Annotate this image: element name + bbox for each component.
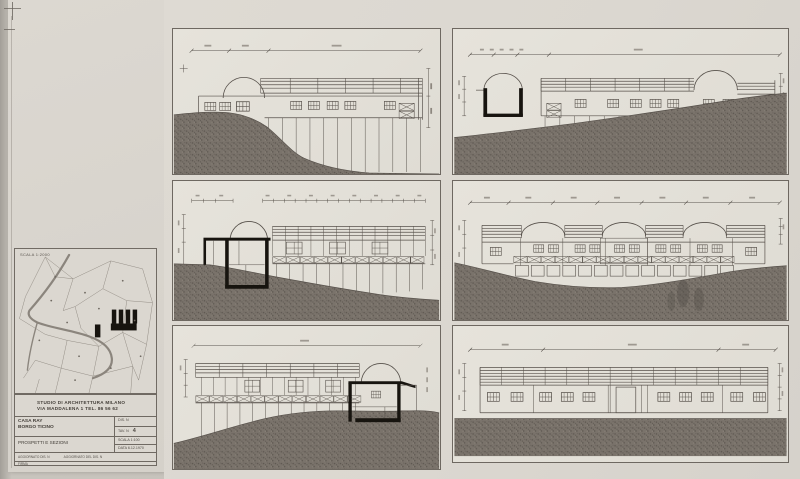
elevation-drawing-f [453,326,788,462]
panel-elevation-a [172,28,441,175]
panel-elevation-d [452,180,789,321]
tav-number: 4 [133,428,136,434]
aggiornato-right: AGGIORNATO DEL DIS. N [64,455,103,462]
section-drawing-e [173,326,440,469]
lower-level-panels [516,265,734,276]
section-elevation-drawing-b [453,29,788,174]
studio-address: VIA MADDALENA 1 TEL. 86 56 62 [37,406,156,412]
sheet-number-cells: DIS. N TAV. N4 [114,417,156,436]
elevation-drawing-a [173,29,440,174]
ground-mass [454,419,786,456]
aggiornato-left: AGGIORNATO DIS. N [18,455,50,462]
dimension-label-marks [178,195,436,259]
firma-row: FIRMA [15,462,156,466]
scanned-drawing-sheet: SCALA 1:2000 [0,0,800,479]
dimension-label-marks [458,344,783,400]
panel-elevation-f [452,325,789,463]
building-lines [480,367,768,412]
scala-cell: SCALA 1:100 [115,437,156,444]
drawing-title: PROSPETTI E SEZIONI [15,437,114,452]
registration-marks-icon [2,0,42,40]
sheet-margin-line [11,16,12,468]
dimension-line [462,201,782,270]
elevation-drawing-d [453,181,788,320]
project-row: CASA RAY BORGO TICINO DIS. N TAV. N4 [15,417,156,437]
ground-mass [454,93,786,174]
site-plan-panel: SCALA 1:2000 [14,248,157,394]
drawing-title-row: PROSPETTI E SEZIONI SCALA 1:100 DATA 6.1… [15,437,156,453]
windows [490,245,756,256]
ground-mass [174,112,439,174]
right-dimension-line [426,68,432,127]
site-plan-map [15,249,156,393]
title-block-sheet: SCALA 1:2000 [8,0,164,472]
project-cell: CASA RAY BORGO TICINO [15,417,114,436]
tav-cell: TAV. N4 [115,426,156,436]
ground-mass [174,264,439,320]
studio-header: STUDIO DI ARCHITETTURA MILANO VIA MADDAL… [15,395,156,417]
scale-date-cells: SCALA 1:100 DATA 6.12.1970 [114,437,156,452]
title-block: STUDIO DI ARCHITETTURA MILANO VIA MADDAL… [14,394,157,466]
section-drawing-c [173,181,440,320]
balustrade [514,256,734,262]
balustrade [273,257,424,263]
dis-cell: DIS. N [115,417,156,426]
site-plan-scale-label: SCALA 1:2000 [20,252,50,257]
ground-mass [454,263,786,320]
data-cell: DATA 6.12.1970 [115,444,156,452]
building-footprints [95,310,137,338]
dimension-line [180,49,423,73]
section-poche [483,88,522,117]
dimension-label-marks [458,197,784,257]
panel-section-elevation-b [452,28,789,175]
panel-section-c [172,180,441,321]
project-location: BORGO TICINO [18,425,114,431]
panel-section-e [172,325,441,470]
tav-label: TAV. N [118,429,129,433]
site-road [27,255,111,378]
windows [487,393,765,402]
dimension-label-marks [204,45,341,47]
balustrade [196,396,361,402]
aggiornato-row: AGGIORNATO DIS. N AGGIORNATO DEL DIS. N [15,453,156,462]
drawings-sheet [164,0,800,479]
